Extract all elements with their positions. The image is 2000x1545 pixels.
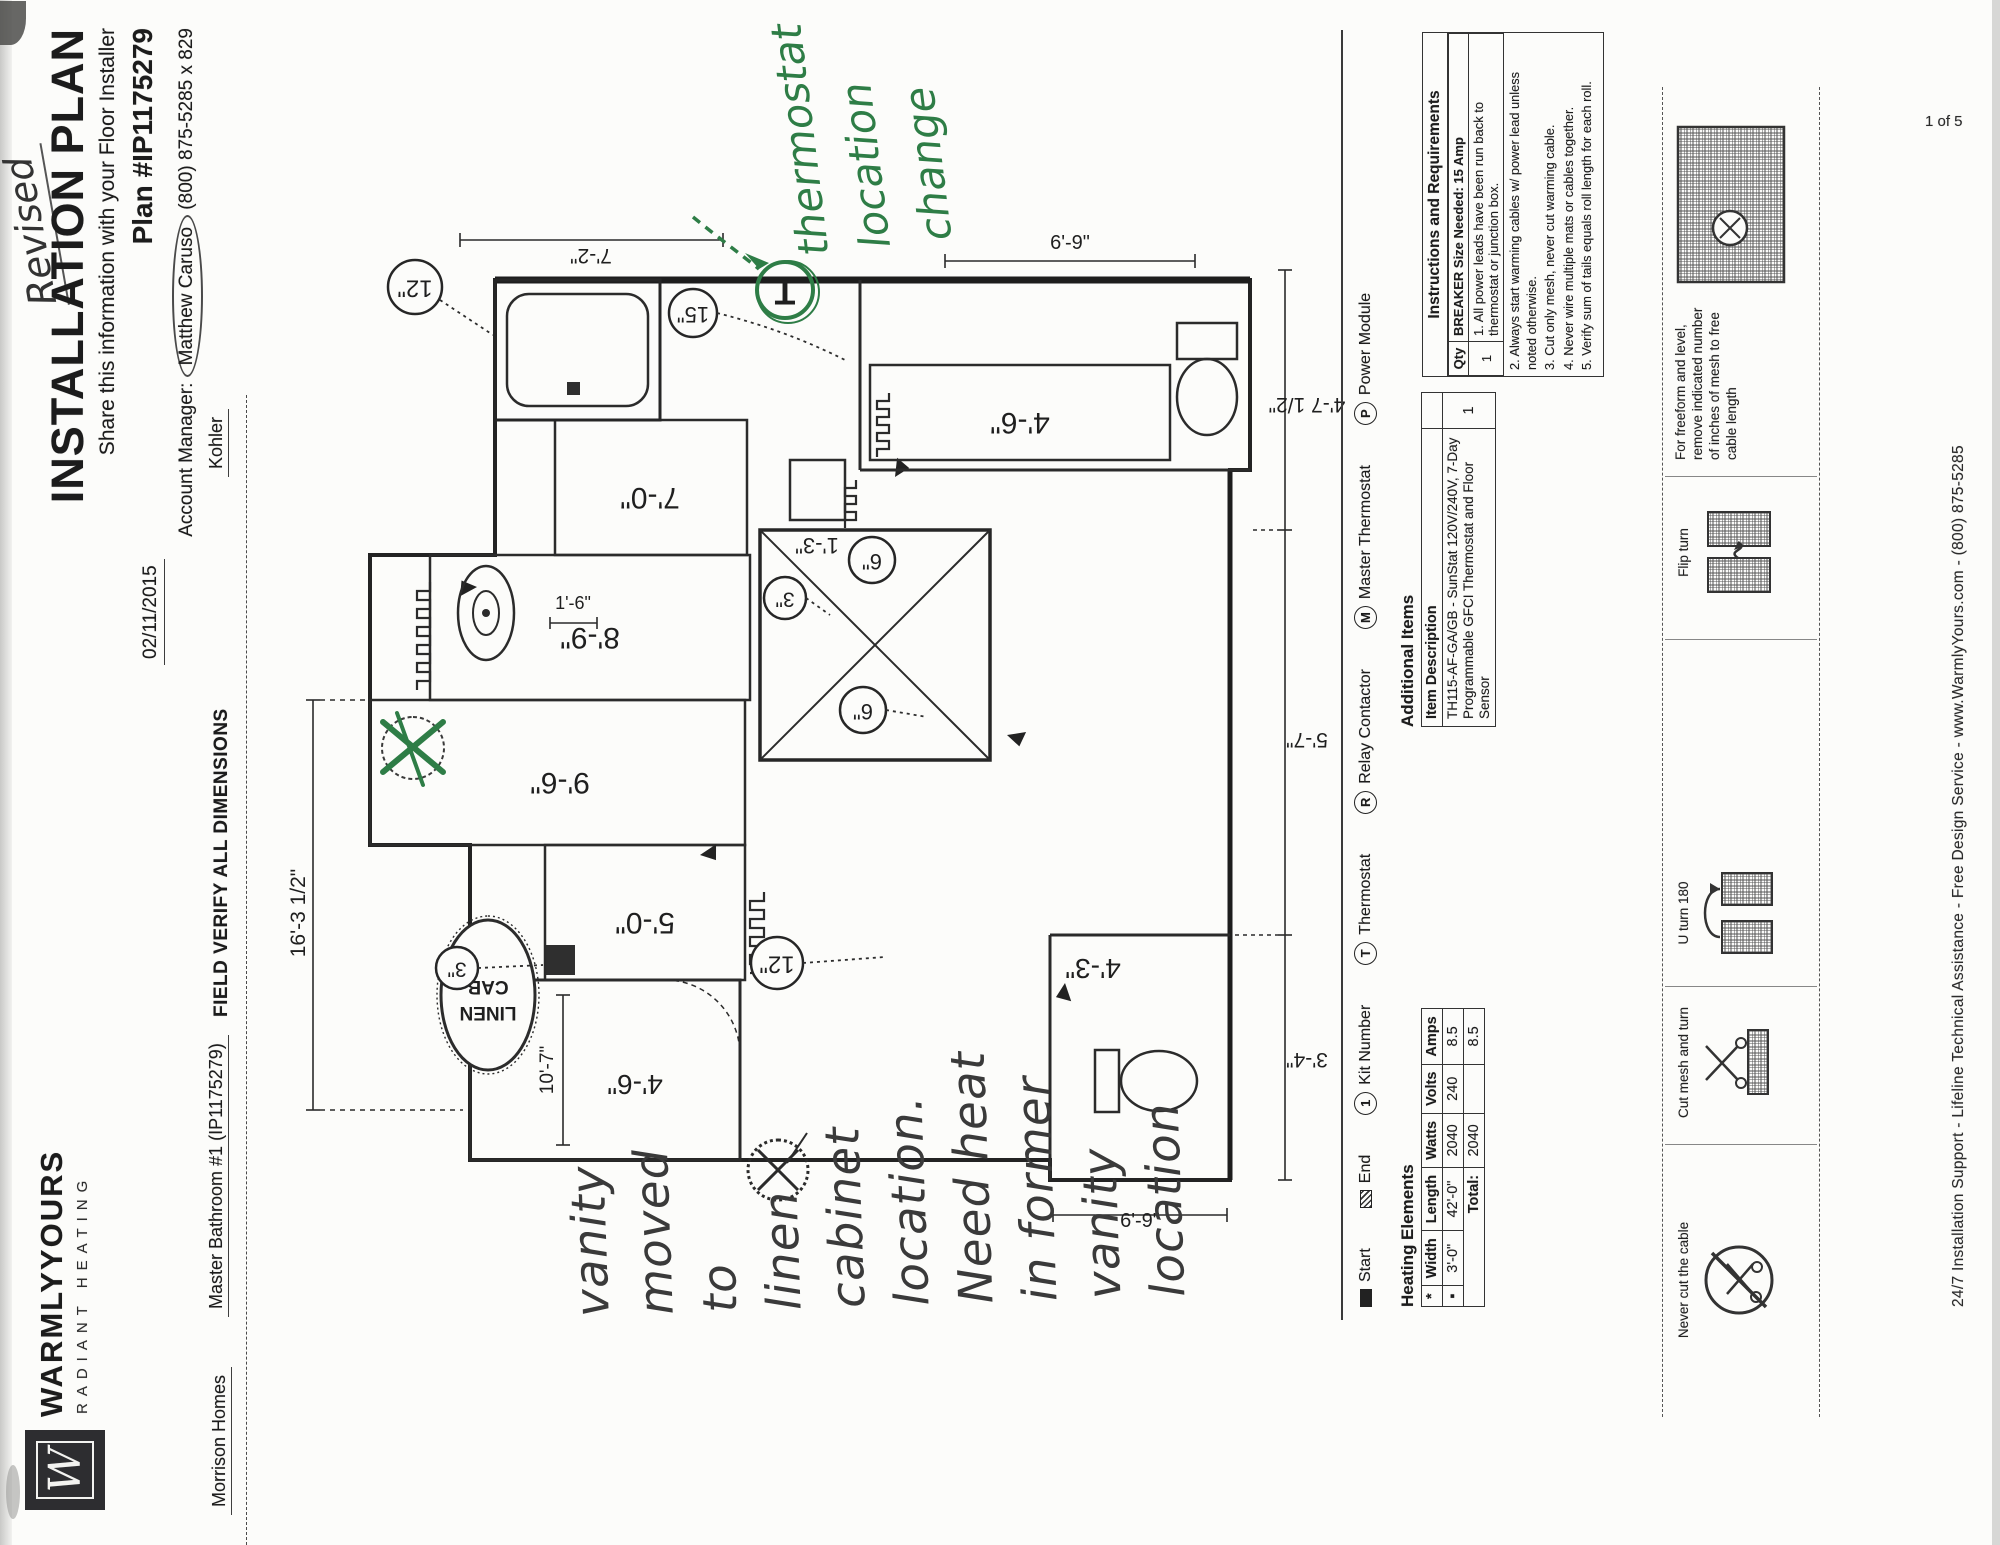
plan-date: 02/11/2015 [140, 559, 165, 665]
bathtub [495, 280, 660, 420]
flip-turn-icon [1698, 505, 1778, 601]
callout-12: 12" [397, 275, 432, 302]
green-crossed-old-thermostat [382, 713, 444, 785]
never-cut-cable-icon [1698, 1235, 1780, 1325]
breaker-size: BREAKER Size Needed: 15 Amp [1449, 34, 1469, 342]
kit-number-icon: 1 [1354, 1092, 1377, 1115]
table-row: ▪ 3'-0" 42'-0" 2040 240 8.5 [1443, 1009, 1464, 1307]
builder-name: Morrison Homes [209, 1367, 232, 1515]
mat-1-3 [790, 460, 845, 520]
end-symbol-icon [1360, 1190, 1372, 1208]
scan-edge-artifact [1992, 0, 2000, 1545]
plan-number: Plan #IP1175279 [127, 28, 159, 244]
dim-tub: 7'-2" [570, 244, 612, 267]
legend-item-kit-number: 1 Kit Number [1354, 1005, 1377, 1115]
master-thermostat-icon: M [1354, 606, 1377, 629]
thermostat-handwritten-note: thermostat location change [753, 0, 968, 259]
col-star: * [1422, 1286, 1443, 1307]
page-number: 1 of 5 [1925, 113, 1963, 130]
col-item-description: Item Description [1422, 429, 1443, 727]
u-turn-icon [1698, 865, 1778, 961]
account-manager-label: Account Manager: [176, 383, 197, 537]
legend-item-thermostat: T Thermostat [1354, 854, 1377, 965]
account-manager-name: Matthew Caruso [172, 215, 203, 377]
legend-item-master-thermostat: M Master Thermostat [1354, 465, 1377, 629]
thermostat-symbol: T [774, 273, 795, 311]
instruction-item: 2. Always start warming cables w/ power … [1507, 39, 1540, 370]
mat-label: 1'-3" [795, 533, 839, 558]
additional-items-table: Additional Items Item Description TH115-… [1398, 392, 1496, 727]
icon-cell-freeform: For freeform and level, remove indicated… [1672, 120, 1790, 460]
instruction-item: 3. Cut only mesh, never cut warming cabl… [1542, 39, 1559, 370]
callout-15: 15" [677, 302, 709, 327]
mat-label: 8'-9" [560, 621, 620, 654]
instruction-list: 2. Always start warming cables w/ power … [1504, 33, 1603, 376]
table-row: TH115-AF-GA/GB - SunStat 120V/240V, 7-Da… [1443, 393, 1496, 727]
item-qty: 1 [1443, 393, 1496, 429]
power-module-icon: P [1354, 402, 1377, 425]
cut-mesh-icon [1698, 1021, 1776, 1105]
serpentine-cable [417, 582, 430, 690]
legend-item-start: Start [1357, 1248, 1375, 1307]
toilet-bowl [1177, 359, 1237, 435]
vanity-handwritten-note: vanity moved to linen cabinet location. … [551, 976, 1202, 1318]
col-qty [1422, 393, 1443, 429]
dim-top: 16'-3 1/2" [287, 869, 310, 958]
mat-label: 4'-6" [990, 406, 1050, 439]
callout-3: 3" [775, 587, 794, 610]
mat-label: 5'-0" [615, 906, 675, 939]
callout-3: 3" [447, 957, 466, 980]
icon-cell-cut-mesh: Cut mesh and turn [1676, 1000, 1780, 1125]
icon-cell-never-cut: Never cut the cable [1676, 1165, 1784, 1395]
brand-tagline: RADIANT HEATING [74, 1174, 91, 1414]
col-volts: Volts [1422, 1064, 1443, 1113]
scan-smudge-artifact [6, 1465, 20, 1519]
item-description: TH115-AF-GA/GB - SunStat 120V/240V, 7-Da… [1443, 429, 1496, 727]
instruction-row: 1 1. All power leads have been run back … [1469, 34, 1504, 376]
start-symbol-icon [1360, 1289, 1372, 1307]
col-width: Width [1422, 1231, 1443, 1286]
instruction-item: 1. All power leads have been run back to… [1469, 34, 1504, 342]
col-watts: Watts [1422, 1113, 1443, 1167]
page-title: INSTALLATION PLAN [42, 28, 94, 503]
serpentine-cable [877, 393, 889, 457]
dim-bottom-left: 3'-4" [1286, 1048, 1328, 1071]
linen-label-1: LINEN [460, 1002, 517, 1023]
toilet-tank [1177, 323, 1237, 359]
callout-12: 12" [759, 951, 794, 978]
icon-cell-flip-turn: Flip turn [1676, 490, 1782, 615]
callout-6: 6" [862, 549, 882, 574]
freeform-mesh-icon [1672, 121, 1790, 286]
page-subtitle: Share this information with your Floor I… [96, 28, 120, 455]
warmlyyours-logo: W [25, 1430, 105, 1510]
project-name: Master Bathroom #1 (IP1175279) [206, 1035, 229, 1317]
symbol-legend: Start End 1 Kit Number T Thermostat R Re… [1354, 77, 1377, 1307]
installation-plan-sheet: W WARMLYYOURS RADIANT HEATING Revised IN… [0, 0, 2000, 1545]
legend-item-power-module: P Power Module [1354, 293, 1377, 425]
cable-arrow [1007, 726, 1031, 749]
col-length: Length [1422, 1167, 1443, 1230]
tub-drain [567, 382, 580, 395]
relay-contactor-icon: R [1354, 791, 1377, 814]
floor-sensor [545, 945, 575, 975]
spacing-callouts [388, 260, 895, 989]
breaker-row: Qty BREAKER Size Needed: 15 Amp [1449, 34, 1469, 376]
instruction-item: 4. Never wire multiple mats or cables to… [1561, 39, 1578, 370]
col-amps: Amps [1422, 1009, 1443, 1064]
field-verify-note: FIELD VERIFY ALL DIMENSIONS [211, 708, 232, 1017]
dim-bottom-right: 4'-7 1/2" [1269, 393, 1346, 416]
plan-footer-divider [1341, 30, 1343, 1320]
icon-cell-u-turn: U turn 180 [1676, 853, 1782, 973]
dim-bottom-mid: 5'-7" [1286, 728, 1328, 751]
table-total-row: Total: 2040 8.5 [1464, 1009, 1485, 1307]
heating-elements-title: Heating Elements [1398, 1008, 1418, 1307]
additional-items-title: Additional Items [1398, 392, 1418, 727]
thermostat-icon: T [1354, 942, 1377, 965]
support-footer-line: 24/7 Installation Support - Lifeline Tec… [1950, 445, 1968, 1307]
instruction-item: 5. Verify sum of tails equals roll lengt… [1579, 39, 1596, 370]
fixture-brand: Kohler [206, 409, 229, 477]
dim-small: 1'-6" [555, 593, 591, 613]
instructions-title: Instructions and Requirements [1423, 33, 1448, 376]
serpentine-cable [845, 480, 856, 528]
cable-arrow [890, 455, 910, 477]
logo-monogram: W [36, 1441, 94, 1499]
legend-item-relay: R Relay Contactor [1354, 669, 1377, 814]
mat-label: 9'-6" [530, 766, 590, 799]
scan-corner-artifact [0, 1, 26, 45]
account-manager-phone: (800) 875-5285 x 829 [176, 28, 197, 210]
dim-right: 6'-9" [1050, 232, 1090, 254]
scan-stage: W WARMLYYOURS RADIANT HEATING Revised IN… [0, 0, 2000, 1545]
callout-6: 6" [853, 699, 873, 724]
legend-item-end: End [1357, 1155, 1375, 1208]
account-manager-line: Account Manager: Matthew Caruso (800) 87… [176, 28, 198, 537]
mat-label: 7'-0" [620, 481, 680, 514]
instructions-panel: Instructions and Requirements Qty BREAKE… [1422, 32, 1604, 377]
heating-elements-table: Heating Elements * Width Length Watts Vo… [1398, 1008, 1485, 1307]
brand-name: WARMLYYOURS [34, 1150, 70, 1417]
